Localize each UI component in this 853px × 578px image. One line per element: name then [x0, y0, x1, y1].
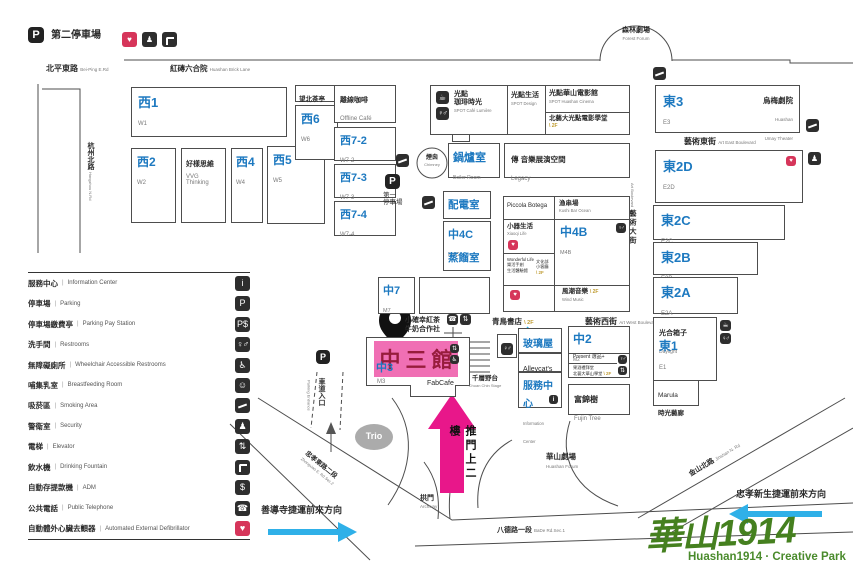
huashan-park-map: P 第二停車場 ♥ ♟ 北平東路 Bei-Ping E.Rd 杭州北路 Hang… — [0, 0, 853, 578]
chimney-label: 煙囪Chimney — [417, 155, 447, 169]
restroom-icon: ♀♂ — [235, 337, 250, 352]
legend-row: 電梯|Elevator⇅ — [28, 437, 250, 457]
wonderful-life-label: Wonderful Life樂活手創生活體驗館 — [507, 257, 534, 273]
restroom-icon: ♀♂ — [618, 355, 627, 364]
street-beiping: 北平東路 Bei-Ping E.Rd — [46, 64, 109, 73]
building-m2: 中2 M2 Present 選品+ 果酒禮拜堂北藝大華山學堂 2F ♀♂ ⇅ — [568, 326, 630, 378]
distill-label: 蒸餾室 — [448, 252, 480, 264]
smoking-icon — [422, 196, 435, 209]
parking1-label: 第一停車場 — [383, 192, 403, 207]
legend-label-en: Wheelchair Accessible Restrooms — [75, 362, 166, 368]
building-m7: 中7 M7 — [378, 277, 415, 314]
legend-separator: | — [100, 526, 102, 532]
security-icon: ♟ — [235, 419, 250, 434]
legend-list: 服務中心|Information Centeri停車場|ParkingP停車場繳… — [28, 272, 250, 540]
legend-row: 飲水機|Drinking Fountain — [28, 457, 250, 477]
legend-label-en: Breastfeeding Room — [68, 382, 123, 388]
parking-entry-icon: P — [316, 350, 330, 364]
street-brick-lane: 紅磚六合院 Huashan Brick Lane — [170, 65, 250, 74]
legend-separator: | — [62, 280, 64, 286]
legend-label-zh: 自動存提款機 — [28, 482, 73, 493]
legend-label-en: Parking Pay Station — [83, 321, 136, 327]
restroom-icon: ♀♂ — [501, 343, 513, 355]
legend-label-zh: 哺集乳室 — [28, 380, 58, 391]
legend-row: 無障礙廁所|Wheelchair Accessible Restrooms♿ — [28, 355, 250, 375]
info-icon: i — [549, 395, 558, 404]
legend-separator: | — [55, 423, 57, 429]
legend-label-zh: 飲水機 — [28, 462, 51, 473]
wind-music-label: 風潮音樂 2F Wind Music — [562, 288, 598, 303]
atm-icon: $ — [235, 480, 250, 495]
kushi-label: 漁串場Kushi Bar Ocean — [559, 200, 591, 215]
legend-label-zh: 吸菸區 — [28, 400, 51, 411]
push-door-label: 推門上二樓 — [446, 425, 478, 491]
building-marula: Marula 時光藝廊 — [653, 380, 699, 406]
building-fujin-tree: 富錦樹 Fujin Tree — [568, 384, 630, 415]
info-icon: i — [235, 276, 250, 291]
driveway-label-en: Parking Entrance — [306, 380, 311, 411]
legend-label-zh: 停車場 — [28, 298, 51, 309]
legend-row: 停車場繳費亭|Parking Pay StationP$ — [28, 314, 250, 334]
legend-row: 自動存提款機|ADM$ — [28, 478, 250, 498]
building-e2a: 東2A E2A — [653, 277, 738, 314]
legend-separator: | — [77, 321, 79, 327]
legend-row: 哺集乳室|Breastfeeding Room☺ — [28, 375, 250, 395]
street-art-east: 藝術東街 Art East Boulevard — [684, 137, 756, 146]
building-e2d: 東2D E2D ♥ — [655, 150, 803, 203]
legend-label-zh: 洗手間 — [28, 339, 51, 350]
building-e1: 光合箱子 Daylight 東1 E1 — [653, 317, 717, 381]
building-legacy: 傳 音樂展演空間 Legacy — [504, 143, 630, 178]
building-alleycats: Alleycat's — [518, 353, 562, 372]
smoking-icon — [806, 119, 819, 132]
street-bade: 八德路一段 BaDe Rd.Sec.1 — [497, 527, 565, 535]
legend-row: 公共電話|Public Telephone☎ — [28, 498, 250, 518]
building-m7-annex — [419, 277, 490, 314]
elevator-icon: ⇅ — [460, 314, 471, 325]
elevator-icon: ⇅ — [618, 366, 627, 375]
legend-separator: | — [62, 382, 64, 388]
fabcafe-label: FabCafe — [427, 380, 454, 388]
driveway-label: 車道入口 — [317, 378, 325, 406]
building-e3: 東3 E3 烏梅劇院 Huashan Umay Theater — [655, 85, 800, 133]
legend-row: 自動體外心臟去顫器|Automated External Defibrillat… — [28, 518, 250, 538]
m2-label: 中2 M2 — [573, 330, 592, 367]
legend-row: 服務中心|Information Centeri — [28, 273, 250, 293]
building-m4c: 中4C M4C 蒸餾室 — [443, 221, 491, 271]
security-icon: ♟ — [808, 152, 821, 165]
aed-icon: ♥ — [235, 521, 250, 536]
building-w7-2: 西7-2 W7-2 — [334, 127, 396, 161]
spot-design-label: 光點生活 SPOT Design — [511, 92, 539, 108]
legend-separator: | — [47, 444, 49, 450]
xinsheng-direction: 忠孝新生捷運前來方向 — [736, 489, 826, 499]
m3-code: 中3 — [376, 362, 393, 375]
driveway-dashed-lines — [311, 372, 343, 430]
coffee-icon: ☕ — [720, 320, 731, 331]
building-info-center: 服務中心 Information Center i — [518, 372, 562, 408]
aed-icon: ♥ — [508, 240, 518, 250]
huashan-logo-en: Huashan1914 · Creative Park — [688, 551, 846, 563]
legend-label-en: Parking — [60, 301, 80, 307]
building-wangbei: 望北茶亭 — [295, 85, 338, 102]
building-e2c: 東2C E2C — [653, 205, 785, 240]
building-vvg: 好樣思維 VVG Thinking — [181, 148, 226, 223]
phone-icon: ☎ — [447, 314, 458, 325]
legend-separator: | — [55, 301, 57, 307]
building-w6: 西6 W6 — [295, 105, 338, 160]
legend-label-zh: 無障礙廁所 — [28, 360, 66, 371]
forest-forum-label: 森林劇場Forest Forum — [600, 27, 672, 43]
building-glass-house: 玻璃屋 — [518, 328, 562, 353]
legend-label-zh: 服務中心 — [28, 278, 58, 289]
archway-label: 拱門Archway — [420, 495, 437, 511]
shandao-direction: 善導寺捷運前來方向 — [261, 505, 342, 515]
stage-steps — [468, 342, 490, 372]
building-spot-block: ☕ ♀♂ 光點 珈琲時光 SPOT Café Lumière 光點生活 SPOT… — [430, 85, 630, 135]
parking2-icon: P — [28, 27, 44, 43]
smoking-icon — [235, 398, 250, 413]
legend-label-en: Smoking Area — [60, 403, 97, 409]
legend-row: 警衛室|Security♟ — [28, 416, 250, 436]
huashan-forum-label: 華山劇場Huashan Forum — [546, 453, 578, 470]
aed-icon: ♥ — [122, 32, 137, 47]
legend-label-en: Security — [60, 423, 82, 429]
spot-cafe-label: 光點 珈琲時光 SPOT Café Lumière — [454, 91, 492, 115]
legend-label-en: ADM — [83, 485, 96, 491]
legend-label-en: Information Center — [68, 280, 118, 286]
m3-code-en: M3 — [377, 379, 385, 386]
legend-label-zh: 公共電話 — [28, 503, 58, 514]
e1-label: 東1 E1 — [659, 337, 678, 374]
legend-row: 停車場|ParkingP — [28, 293, 250, 313]
coffee-icon: ☕ — [436, 91, 449, 104]
legend-label-en: Drinking Fountain — [60, 464, 107, 470]
legend-label-zh: 警衛室 — [28, 421, 51, 432]
legend-row: 洗手間|Restrooms♀♂ — [28, 334, 250, 354]
aed-icon: ♥ — [786, 156, 796, 166]
street-jinshan: 金山北路 Jinshan N. Rd — [688, 442, 742, 479]
building-w4: 西4 W4 — [231, 148, 263, 223]
smoking-icon — [396, 154, 409, 167]
legend-separator: | — [62, 505, 64, 511]
building-w1: 西1 W1 — [131, 87, 287, 137]
restroom-icon: ♀♂ — [436, 107, 449, 120]
legend-label-en: Automated External Defibrillator — [105, 526, 190, 532]
legend-label-en: Public Telephone — [68, 505, 114, 511]
restroom-icon: ♀♂ — [720, 333, 731, 344]
legend-separator: | — [70, 362, 72, 368]
hangzhou-road-inner — [42, 89, 80, 253]
drinking-fountain-icon — [235, 460, 250, 475]
stage-restroom-box: ♀♂ — [497, 334, 517, 358]
trio-label: Trio — [355, 431, 393, 441]
parking1-icon: P — [385, 174, 400, 189]
spot-cinema-label: 光點華山電影館 SPOT Huashan Cinema — [549, 90, 598, 106]
elevator-icon: ⇅ — [450, 344, 459, 353]
north-boundary-line — [124, 60, 853, 63]
building-e2b: 東2B E2B — [653, 242, 758, 275]
breastfeeding-icon: ☺ — [235, 378, 250, 393]
legend-separator: | — [55, 464, 57, 470]
plaza-curve-west — [388, 398, 408, 505]
shandao-arrow — [268, 522, 357, 542]
street-zhongxiao: 忠孝東路二段 Zhongxiao E. Rd.Sec.2 — [299, 450, 340, 487]
legend-label-en: Restrooms — [60, 342, 89, 348]
elevator-icon: ⇅ — [235, 439, 250, 454]
legend-row: 吸菸區|Smoking Area — [28, 396, 250, 416]
phone-icon: ☎ — [235, 501, 250, 516]
building-offline-cafe: 離線咖啡 Offline Café — [334, 85, 396, 123]
restroom-icon: ♀♂ — [616, 223, 626, 233]
present-label: Present 選品+ — [573, 355, 605, 361]
zhongxiao-road-line2 — [230, 424, 370, 560]
milk-coop-label: 小確幸紅茶牛奶合作社 — [405, 316, 440, 334]
building-boiler-room: 鍋爐室 Boiler Room — [448, 143, 500, 178]
wheelchair-icon: ♿ — [450, 355, 459, 364]
parking-icon: P — [235, 296, 250, 311]
wheelchair-icon: ♿ — [235, 358, 250, 373]
plaza-curve-south — [478, 440, 512, 508]
building-m4b-block: Piccola Botega 漁串場Kushi Bar Ocean 小器生活Xi… — [503, 196, 630, 312]
street-art-west: 藝術西街 Art West Boulevard — [585, 317, 658, 326]
culture-room-label: 文化部小客廳 2F — [536, 259, 549, 276]
smoking-icon — [653, 67, 666, 80]
parking-pay-icon: P$ — [235, 317, 250, 332]
xiaoqi-label: 小器生活Xiaoqi Life — [507, 223, 533, 238]
spot-tab — [452, 134, 470, 142]
spot-school-label: 北藝大光點電影學堂 2F — [549, 115, 608, 130]
building-w2: 西2 W2 — [131, 148, 176, 223]
piccola-label: Piccola Botega — [507, 203, 547, 210]
legend-separator: | — [55, 342, 57, 348]
legend-label-zh: 電梯 — [28, 441, 43, 452]
legend-label-zh: 自動體外心臟去顫器 — [28, 523, 96, 534]
parking2-label: 第二停車場 — [51, 30, 101, 42]
umay-theater-label: 烏梅劇院 Huashan Umay Theater — [763, 90, 793, 145]
legend-separator: | — [77, 485, 79, 491]
legend-label-en: Elevator — [53, 444, 75, 450]
m4b-label: 中4B M4B — [560, 223, 587, 260]
aed-icon: ♥ — [510, 290, 520, 300]
street-hangzhou: 杭州北路 Hangzhou N.Rd — [86, 142, 94, 200]
bluebird-label: 青鳥書店 2F — [492, 318, 534, 327]
stage-label: 千層野台Chuan Chin Stage — [463, 375, 507, 390]
fruit-wine-label: 果酒禮拜堂北藝大華山學堂 2F — [573, 365, 611, 377]
legend-label-zh: 停車場繳費亭 — [28, 319, 73, 330]
security-icon: ♟ — [142, 32, 157, 47]
driveway-arrow-head — [326, 422, 336, 434]
legend-separator: | — [55, 403, 57, 409]
drinking-fountain-icon — [162, 32, 177, 47]
building-electrical: 配電室 Electrical room — [443, 191, 491, 219]
